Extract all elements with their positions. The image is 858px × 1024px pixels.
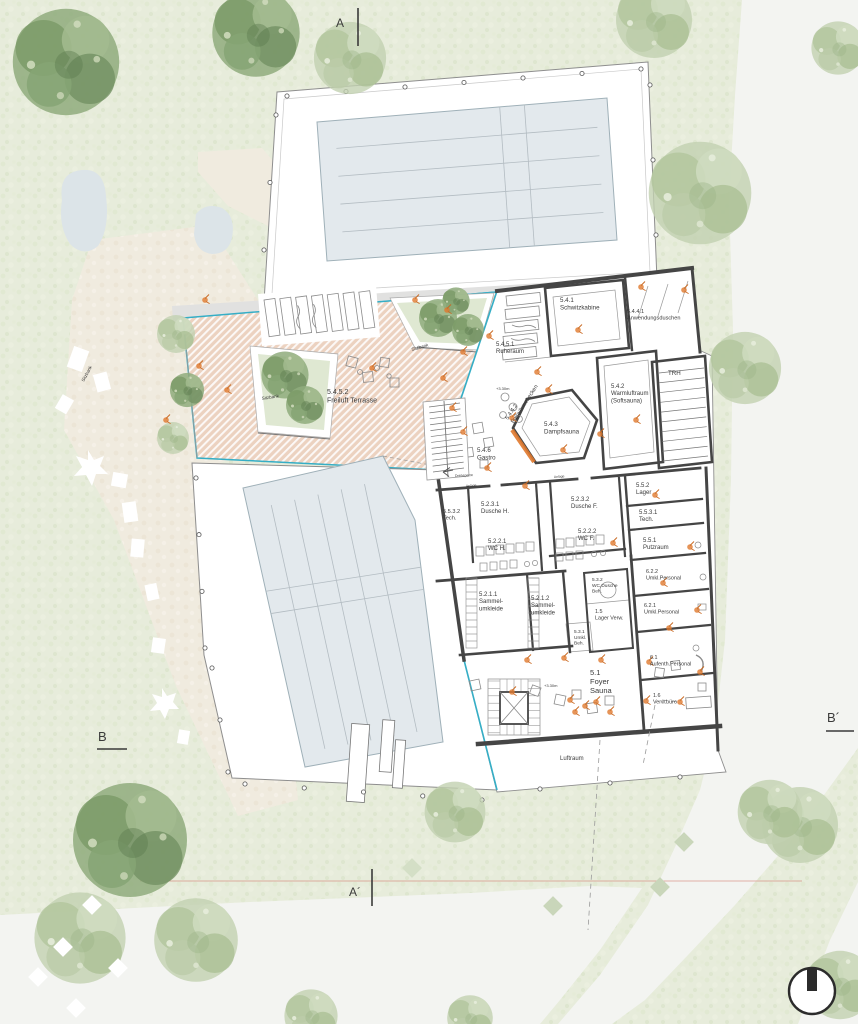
column-dot	[200, 589, 204, 593]
label-anlage-2: Anlage	[554, 474, 565, 479]
column-dot	[262, 248, 266, 252]
tree	[709, 332, 781, 404]
column-dot	[274, 113, 278, 117]
column-dot	[194, 476, 198, 480]
label-luftraum: Luftraum	[560, 756, 584, 762]
column-dot	[580, 71, 584, 75]
pond-left	[61, 170, 107, 252]
column-dot	[608, 781, 612, 785]
column-dot	[678, 775, 682, 779]
upper-pool	[317, 98, 617, 261]
column-dot	[218, 718, 222, 722]
tree	[157, 422, 189, 454]
label-anlage-1: Anlage	[466, 483, 477, 488]
column-dot	[197, 533, 201, 537]
column-dot	[361, 790, 365, 794]
column-dot	[243, 782, 247, 786]
column-dot	[648, 83, 652, 87]
column-dot	[210, 666, 214, 670]
tree	[73, 783, 187, 897]
site-plan-canvas: AA´BB´5.4.5.2Freiluft TerrasseSitzbankSi…	[0, 0, 858, 1024]
column-dot	[521, 76, 525, 80]
north-arrow-icon	[789, 968, 835, 1014]
column-dot	[421, 794, 425, 798]
tree	[157, 315, 195, 353]
west-stair	[423, 398, 469, 480]
column-dot	[538, 787, 542, 791]
column-dot	[268, 180, 272, 184]
section-a-prime: A´	[349, 885, 361, 899]
floor-plan-drawing: AA´BB´5.4.5.2Freiluft TerrasseSitzbankSi…	[0, 0, 858, 1024]
column-dot	[226, 770, 230, 774]
section-b: B	[98, 729, 107, 744]
tree	[649, 142, 752, 245]
tree	[154, 898, 238, 982]
tree	[314, 22, 386, 94]
label-level-1: +3.30m	[496, 386, 510, 391]
section-a: A	[336, 16, 344, 30]
column-dot	[639, 67, 643, 71]
column-dot	[203, 646, 207, 650]
column-dot	[403, 85, 407, 89]
section-b-prime: B´	[827, 710, 840, 725]
column-dot	[651, 158, 655, 162]
label-lager-552: 5.5.2Lager	[636, 483, 651, 496]
label-wc-h: 5.2.2.1WC H.	[488, 539, 507, 552]
tree	[170, 373, 204, 407]
pond-right	[194, 206, 233, 254]
column-dot	[302, 786, 306, 790]
label-wc-f: 5.2.2.2WC F.	[578, 529, 597, 542]
label-trh: TRH	[668, 370, 681, 377]
column-dot	[654, 233, 658, 237]
tree	[286, 386, 324, 424]
tree	[452, 314, 484, 346]
column-dot	[462, 80, 466, 84]
column-dot	[285, 94, 289, 98]
terrace-loungers	[258, 285, 380, 346]
label-level-2: +3.30m	[544, 683, 558, 688]
tree	[738, 780, 803, 845]
tree	[425, 782, 486, 843]
tree	[13, 9, 119, 115]
